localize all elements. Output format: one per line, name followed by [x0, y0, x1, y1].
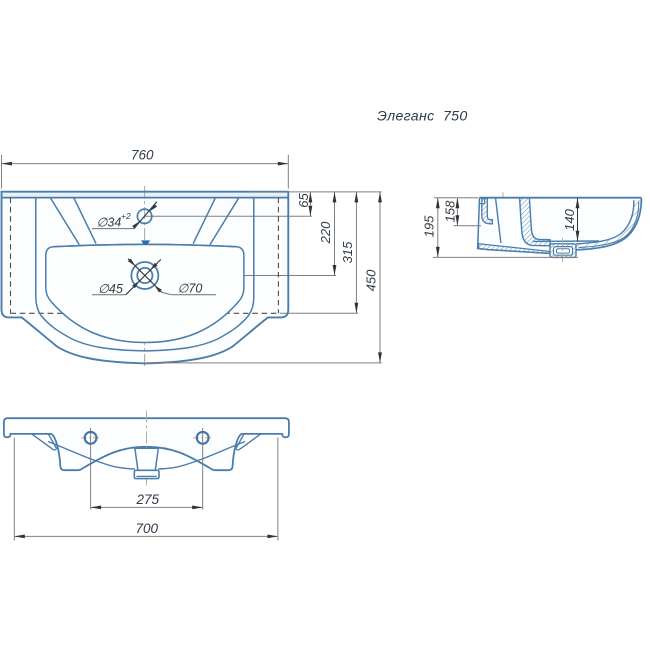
svg-text:700: 700	[136, 521, 159, 536]
svg-text:∅34: ∅34	[97, 215, 122, 229]
svg-text:195: 195	[422, 215, 437, 237]
svg-text:220: 220	[318, 221, 333, 244]
svg-text:760: 760	[131, 148, 154, 163]
svg-text:315: 315	[340, 241, 355, 263]
svg-text:158: 158	[442, 200, 457, 222]
svg-text:275: 275	[136, 492, 160, 507]
svg-text:65: 65	[296, 193, 311, 208]
svg-text:+2: +2	[121, 211, 131, 221]
svg-text:Элеганс 750: Элеганс 750	[377, 109, 468, 125]
svg-text:∅70: ∅70	[178, 282, 203, 296]
svg-text:450: 450	[364, 269, 379, 291]
svg-text:140: 140	[562, 208, 577, 230]
svg-text:∅45: ∅45	[98, 282, 123, 296]
